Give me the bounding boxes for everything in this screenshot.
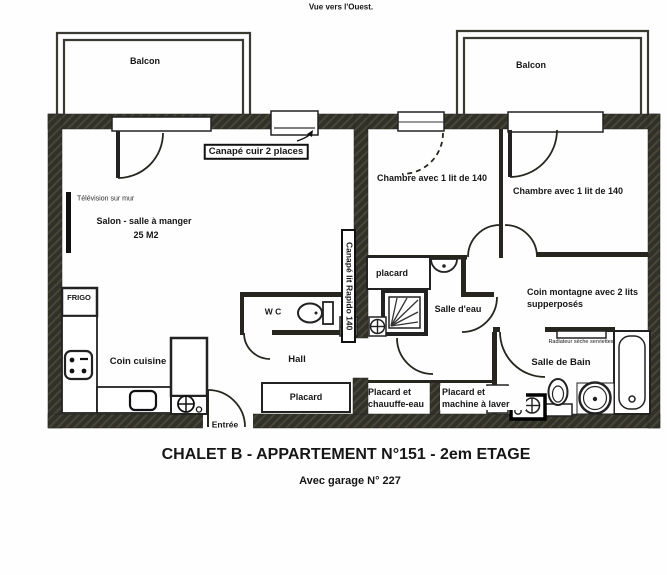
showerroom-washbasin-icon bbox=[431, 259, 457, 272]
showerroom-wall-bottom bbox=[461, 292, 494, 297]
kitchen-valve-box bbox=[171, 396, 207, 414]
view-caption: Vue vers l'Ouest. bbox=[309, 4, 373, 13]
balcony-right-rail bbox=[457, 31, 648, 115]
bedroom2-balcony-door-arc bbox=[510, 130, 557, 177]
bathroom-door-arc bbox=[500, 332, 545, 377]
showerroom-wall-right bbox=[461, 257, 466, 297]
living-room-area-label: 25 M2 bbox=[133, 231, 158, 241]
balcony-left-rail bbox=[57, 33, 250, 115]
bathroom-washbasin-icon bbox=[545, 379, 572, 416]
wc-toilet-icon bbox=[298, 302, 333, 324]
kitchen-cupboard bbox=[171, 338, 207, 396]
stove-icon bbox=[65, 351, 92, 379]
page-title: CHALET B - APPARTEMENT N°151 - 2em ETAGE bbox=[162, 446, 531, 464]
living-balcony-door-leaf bbox=[116, 131, 120, 178]
wall-central-lower bbox=[353, 378, 368, 414]
closet-heater-label: Placard et chauuffe-eau bbox=[368, 386, 438, 410]
bathtub-icon bbox=[614, 331, 650, 414]
page-subtitle: Avec garage N° 227 bbox=[299, 475, 401, 487]
sofa-leather-label: Canapé cuir 2 places bbox=[204, 144, 309, 160]
balcony-left-label: Balcon bbox=[130, 57, 160, 67]
bedroom2-balcony-door-leaf bbox=[508, 130, 512, 177]
wall-left bbox=[48, 114, 62, 428]
kitchen-label: Coin cuisine bbox=[110, 357, 166, 367]
bathroom-wall-top-left bbox=[493, 327, 500, 332]
bedrooms-hall-wall-right bbox=[537, 252, 648, 257]
towel-radiator-label: Radiateur sèche serviettes bbox=[548, 339, 613, 345]
bedroom1-window-swing-dashed bbox=[402, 133, 443, 174]
tv-icon bbox=[66, 192, 71, 253]
hall-label: Hall bbox=[288, 355, 305, 365]
kitchen-units bbox=[62, 288, 207, 414]
bedroom1-label: Chambre avec 1 lit de 140 bbox=[377, 174, 487, 184]
closet-row-top-line bbox=[368, 380, 492, 383]
bathroom-label: Salle de Bain bbox=[531, 358, 590, 368]
bedroom2-balcony-door-opening bbox=[508, 112, 603, 132]
living-balcony-window bbox=[112, 117, 211, 131]
bedroom-divider-wall bbox=[499, 129, 503, 258]
fridge-label: FRIGO bbox=[67, 294, 91, 302]
living-room-label: Salon - salle à manger bbox=[96, 217, 191, 227]
bedroom2-label: Chambre avec 1 lit de 140 bbox=[513, 187, 623, 197]
mountain-corner-label: Coin montagne avec 2 lits supperposés bbox=[527, 286, 655, 310]
balcony-right-label: Balcon bbox=[516, 61, 546, 71]
closet-hall-label: Placard bbox=[290, 393, 323, 403]
towel-radiator-icon bbox=[557, 331, 606, 338]
floor-plan-page: Vue vers l'Ouest. Balcon Balcon Canapé c… bbox=[0, 0, 667, 575]
wc-wall-left bbox=[240, 297, 244, 335]
shower-room-label: Salle d'eau bbox=[435, 305, 482, 315]
corridor-door-arc bbox=[397, 338, 433, 374]
wc-door-arc bbox=[244, 333, 270, 359]
closet-washer-label: Placard et machine à laver bbox=[440, 386, 526, 410]
living-balcony-door-arc bbox=[118, 133, 163, 178]
wc-wall-top bbox=[240, 292, 354, 297]
tv-label: Télévision sur mur bbox=[77, 196, 134, 203]
wc-label: W C bbox=[265, 307, 282, 316]
entrance-label: Entrée bbox=[210, 420, 240, 429]
bedroom1-door-arc bbox=[468, 225, 500, 257]
sofa-bed-label: Canapé lit Rapido 140 bbox=[341, 229, 356, 343]
bedroom2-door-arc bbox=[505, 225, 537, 257]
bathroom-sink-icon bbox=[577, 383, 614, 415]
shower-icon bbox=[383, 291, 426, 334]
closet-upper-label: placard bbox=[376, 269, 408, 279]
